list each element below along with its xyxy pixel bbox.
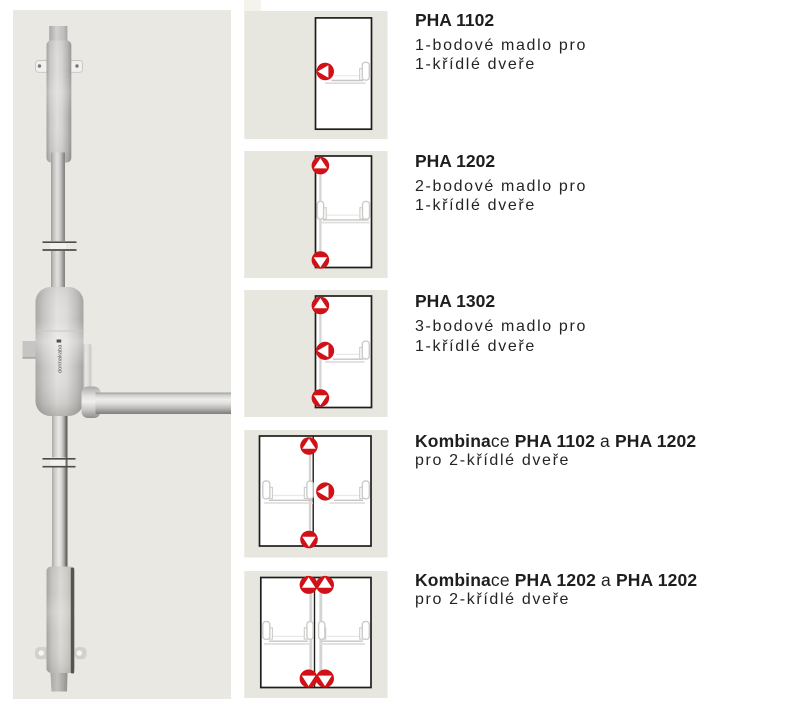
svg-text:dormakaba: dormakaba [57, 344, 63, 373]
